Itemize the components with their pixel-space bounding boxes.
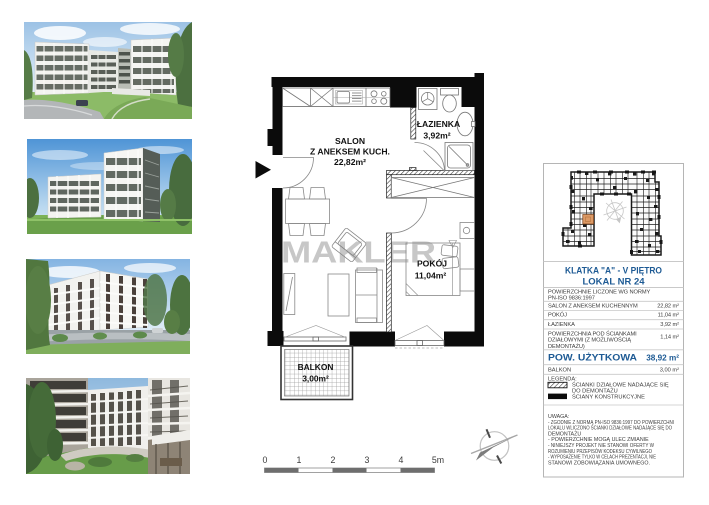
svg-text:3,00m²: 3,00m² [302, 374, 329, 384]
svg-text:POKÓJ: POKÓJ [417, 258, 447, 269]
svg-text:Z ANEKSEM KUCH.: Z ANEKSEM KUCH. [310, 147, 390, 157]
svg-text:POWIERZCHNIA POD ŚCIANKAMI: POWIERZCHNIA POD ŚCIANKAMI [548, 329, 637, 337]
svg-text:ŁAZIENKA: ŁAZIENKA [548, 322, 575, 328]
svg-text:ŚCIANY KONSTRUKCYJNE: ŚCIANY KONSTRUKCYJNE [572, 393, 645, 401]
svg-text:LOKALU WLICZONO ŚCIANKI DZIAŁO: LOKALU WLICZONO ŚCIANKI DZIAŁOWE NADAJĄC… [548, 424, 672, 432]
svg-text:1: 1 [297, 455, 302, 465]
svg-text:4: 4 [399, 455, 404, 465]
svg-text:POW. UŻYTKOWA: POW. UŻYTKOWA [548, 353, 637, 364]
svg-text:1,14 m²: 1,14 m² [660, 335, 679, 341]
svg-text:3,92m²: 3,92m² [423, 131, 450, 141]
svg-text:11,04 m²: 11,04 m² [658, 313, 680, 319]
svg-text:3: 3 [365, 455, 370, 465]
svg-text:3,92 m²: 3,92 m² [660, 322, 679, 328]
svg-text:ŁAZIENKA: ŁAZIENKA [417, 119, 460, 129]
svg-text:22,82 m²: 22,82 m² [657, 303, 679, 309]
svg-text:11,04m²: 11,04m² [415, 271, 447, 281]
svg-text:5m: 5m [432, 455, 444, 465]
svg-text:DZIAŁOWYMI (Z MOŻLIWOŚCIĄ: DZIAŁOWYMI (Z MOŻLIWOŚCIĄ [548, 336, 631, 344]
svg-text:22,82m²: 22,82m² [334, 157, 366, 167]
svg-text:STANOWI ZOBOWIĄZANIA UMOWNEGO.: STANOWI ZOBOWIĄZANIA UMOWNEGO. [548, 460, 650, 466]
svg-text:38,92 m²: 38,92 m² [646, 354, 679, 363]
svg-text:KLATKA "A" - V PIĘTRO: KLATKA "A" - V PIĘTRO [565, 266, 662, 277]
svg-text:BALKON: BALKON [548, 367, 571, 373]
svg-text:LOKAL NR 24: LOKAL NR 24 [583, 277, 646, 288]
svg-text:POKÓJ: POKÓJ [548, 312, 567, 319]
svg-text:2: 2 [331, 455, 336, 465]
svg-text:SALON Z ANEKSEM KUCHENNYM: SALON Z ANEKSEM KUCHENNYM [548, 303, 638, 309]
svg-text:0: 0 [263, 455, 268, 465]
svg-text:SALON: SALON [335, 136, 365, 146]
svg-text:DO DEMONTAŻU: DO DEMONTAŻU [572, 387, 618, 394]
svg-text:BALKON: BALKON [298, 362, 334, 372]
svg-text:PN-ISO 9836:1997: PN-ISO 9836:1997 [548, 296, 595, 302]
svg-text:DEMONTAŻU): DEMONTAŻU) [548, 343, 585, 350]
svg-text:3,00 m²: 3,00 m² [660, 367, 679, 373]
svg-text:ŚCIANKI DZIAŁOWE NADAJĄCE SIĘ: ŚCIANKI DZIAŁOWE NADAJĄCE SIĘ [572, 380, 669, 388]
